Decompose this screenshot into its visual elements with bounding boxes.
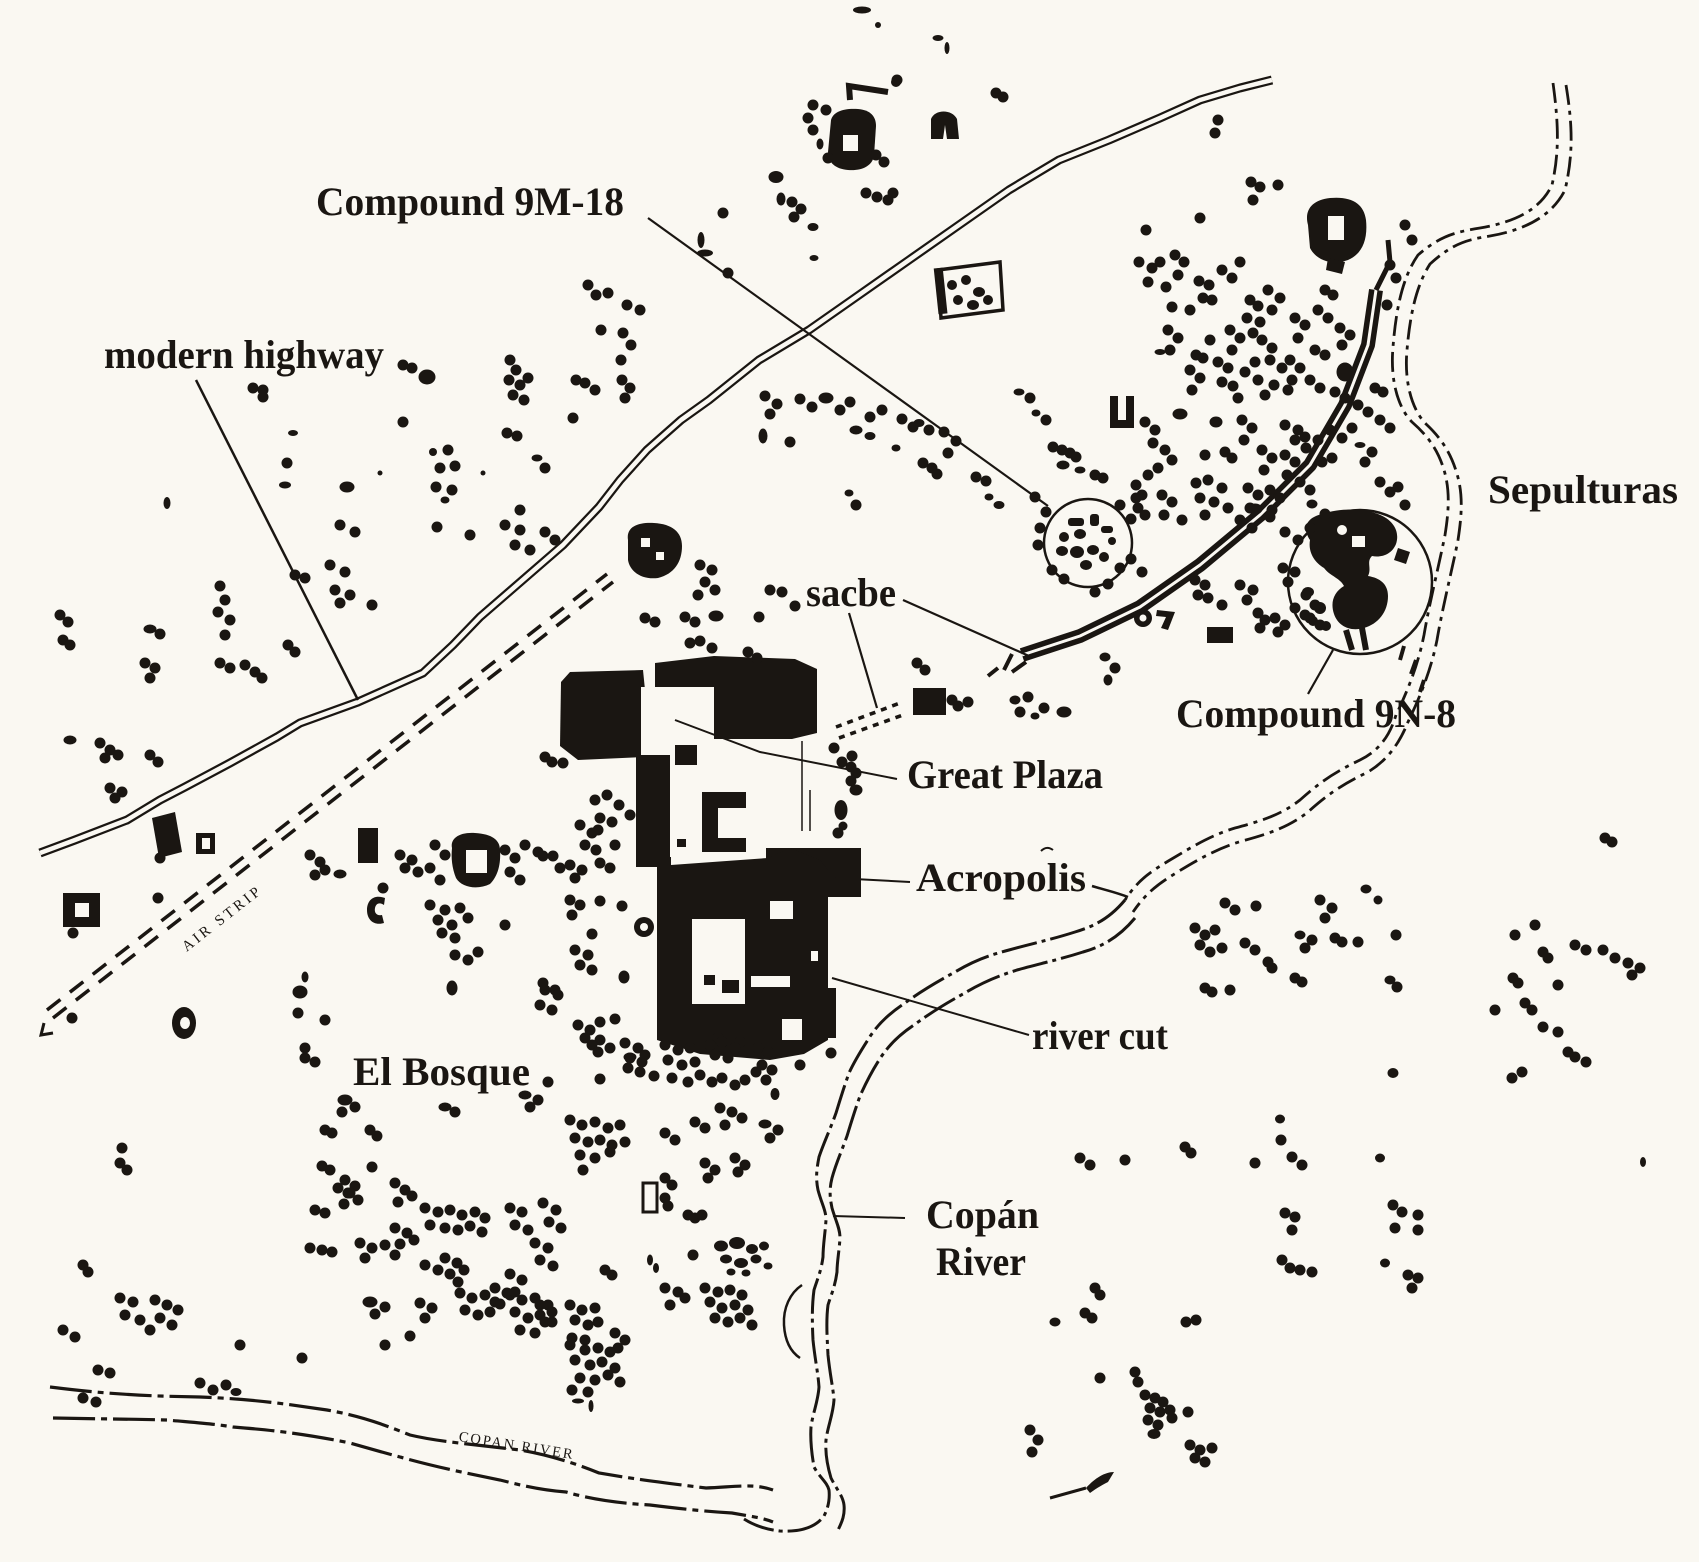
svg-text:Copán: Copán [926,1192,1039,1237]
svg-text:Compound 9M-18: Compound 9M-18 [316,179,624,224]
svg-text:modern highway: modern highway [104,332,384,377]
svg-text:sacbe: sacbe [806,570,896,615]
svg-text:River: River [936,1239,1026,1284]
svg-text:Compound 9N-8: Compound 9N-8 [1176,691,1456,736]
svg-text:El Bosque: El Bosque [353,1049,530,1094]
svg-text:Acropolis: Acropolis [916,855,1086,900]
svg-text:Sepulturas: Sepulturas [1488,467,1678,512]
svg-text:river cut: river cut [1032,1013,1169,1058]
svg-text:Great Plaza: Great Plaza [907,752,1103,797]
